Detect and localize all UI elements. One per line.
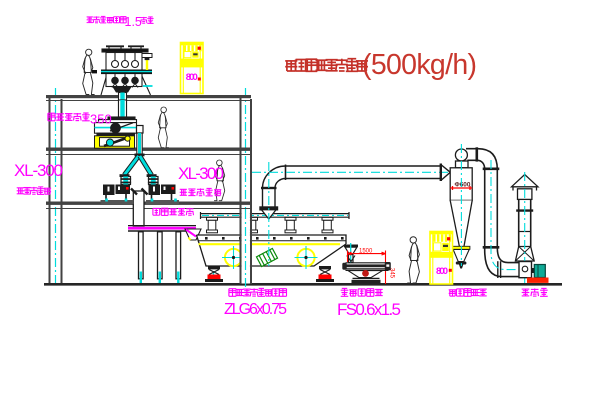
svg-text:1500: 1500 — [359, 248, 373, 254]
svg-text:XL-300: XL-300 — [14, 161, 63, 180]
svg-text:XL-300: XL-300 — [178, 164, 224, 183]
svg-text:FS0.6x1.5: FS0.6x1.5 — [337, 300, 401, 319]
svg-text:1.5: 1.5 — [125, 15, 142, 29]
svg-text:ZLG6x0.75: ZLG6x0.75 — [224, 301, 287, 318]
svg-text:800: 800 — [436, 266, 448, 277]
svg-text:Φ600: Φ600 — [455, 182, 471, 189]
svg-text:800: 800 — [186, 72, 198, 83]
svg-text:350: 350 — [90, 112, 112, 127]
svg-text:(500kg/h): (500kg/h) — [362, 49, 476, 81]
